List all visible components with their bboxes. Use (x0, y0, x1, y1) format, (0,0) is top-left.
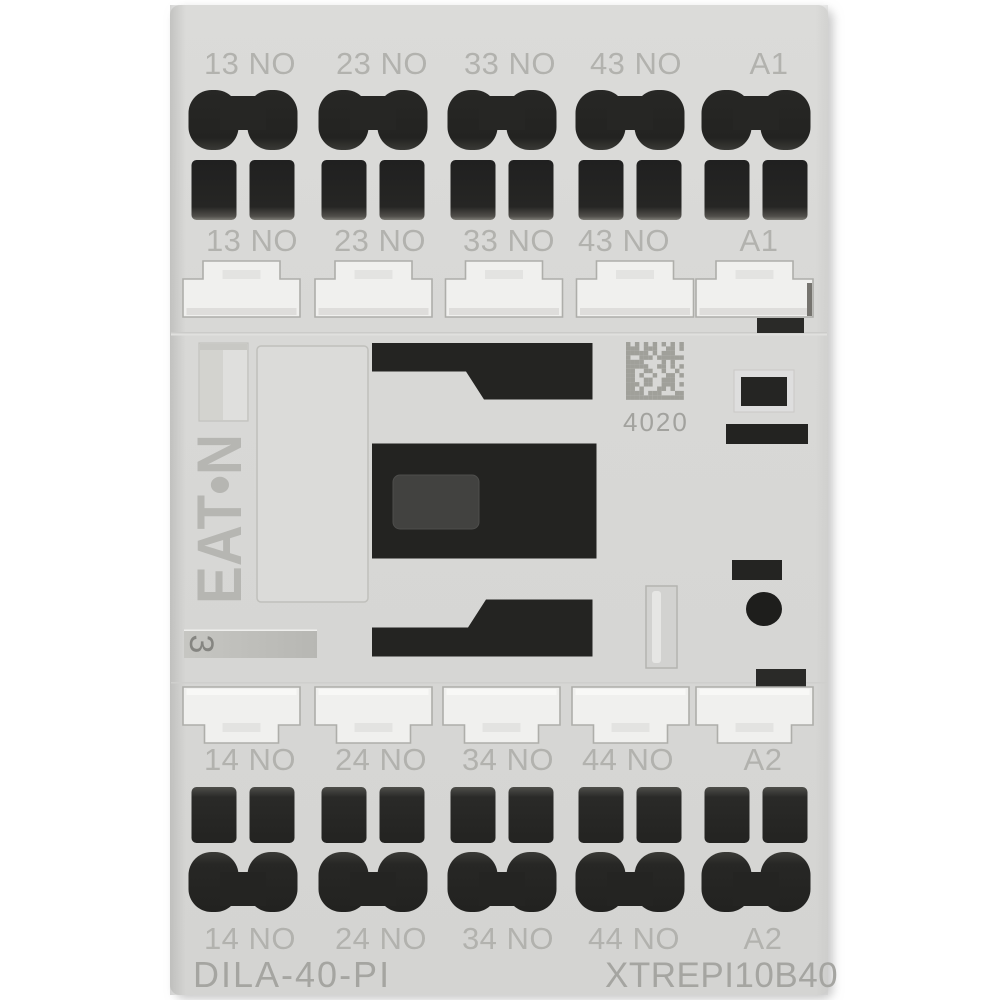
svg-text:DILA-40-PI: DILA-40-PI (193, 954, 391, 995)
svg-text:23 NO: 23 NO (336, 46, 428, 81)
svg-text:A2: A2 (744, 921, 783, 956)
svg-text:24 NO: 24 NO (335, 921, 427, 956)
svg-text:33 NO: 33 NO (463, 223, 555, 258)
svg-text:3: 3 (182, 635, 220, 654)
svg-text:23 NO: 23 NO (334, 223, 426, 258)
svg-text:33 NO: 33 NO (464, 46, 556, 81)
svg-text:34 NO: 34 NO (462, 921, 554, 956)
svg-text:4020: 4020 (623, 407, 689, 437)
svg-text:44 NO: 44 NO (588, 921, 680, 956)
svg-text:14 NO: 14 NO (204, 742, 296, 777)
svg-text:13 NO: 13 NO (204, 46, 296, 81)
svg-text:44 NO: 44 NO (582, 742, 674, 777)
svg-text:43 NO: 43 NO (578, 223, 670, 258)
svg-text:34 NO: 34 NO (462, 742, 554, 777)
svg-text:A1: A1 (750, 46, 789, 81)
svg-text:14 NO: 14 NO (204, 921, 296, 956)
svg-text:EAT•N: EAT•N (185, 434, 255, 604)
svg-text:A2: A2 (744, 742, 783, 777)
svg-text:XTREPI10B40: XTREPI10B40 (605, 956, 838, 995)
svg-text:A1: A1 (740, 223, 779, 258)
svg-text:24 NO: 24 NO (335, 742, 427, 777)
svg-text:13 NO: 13 NO (206, 223, 298, 258)
svg-text:43 NO: 43 NO (590, 46, 682, 81)
